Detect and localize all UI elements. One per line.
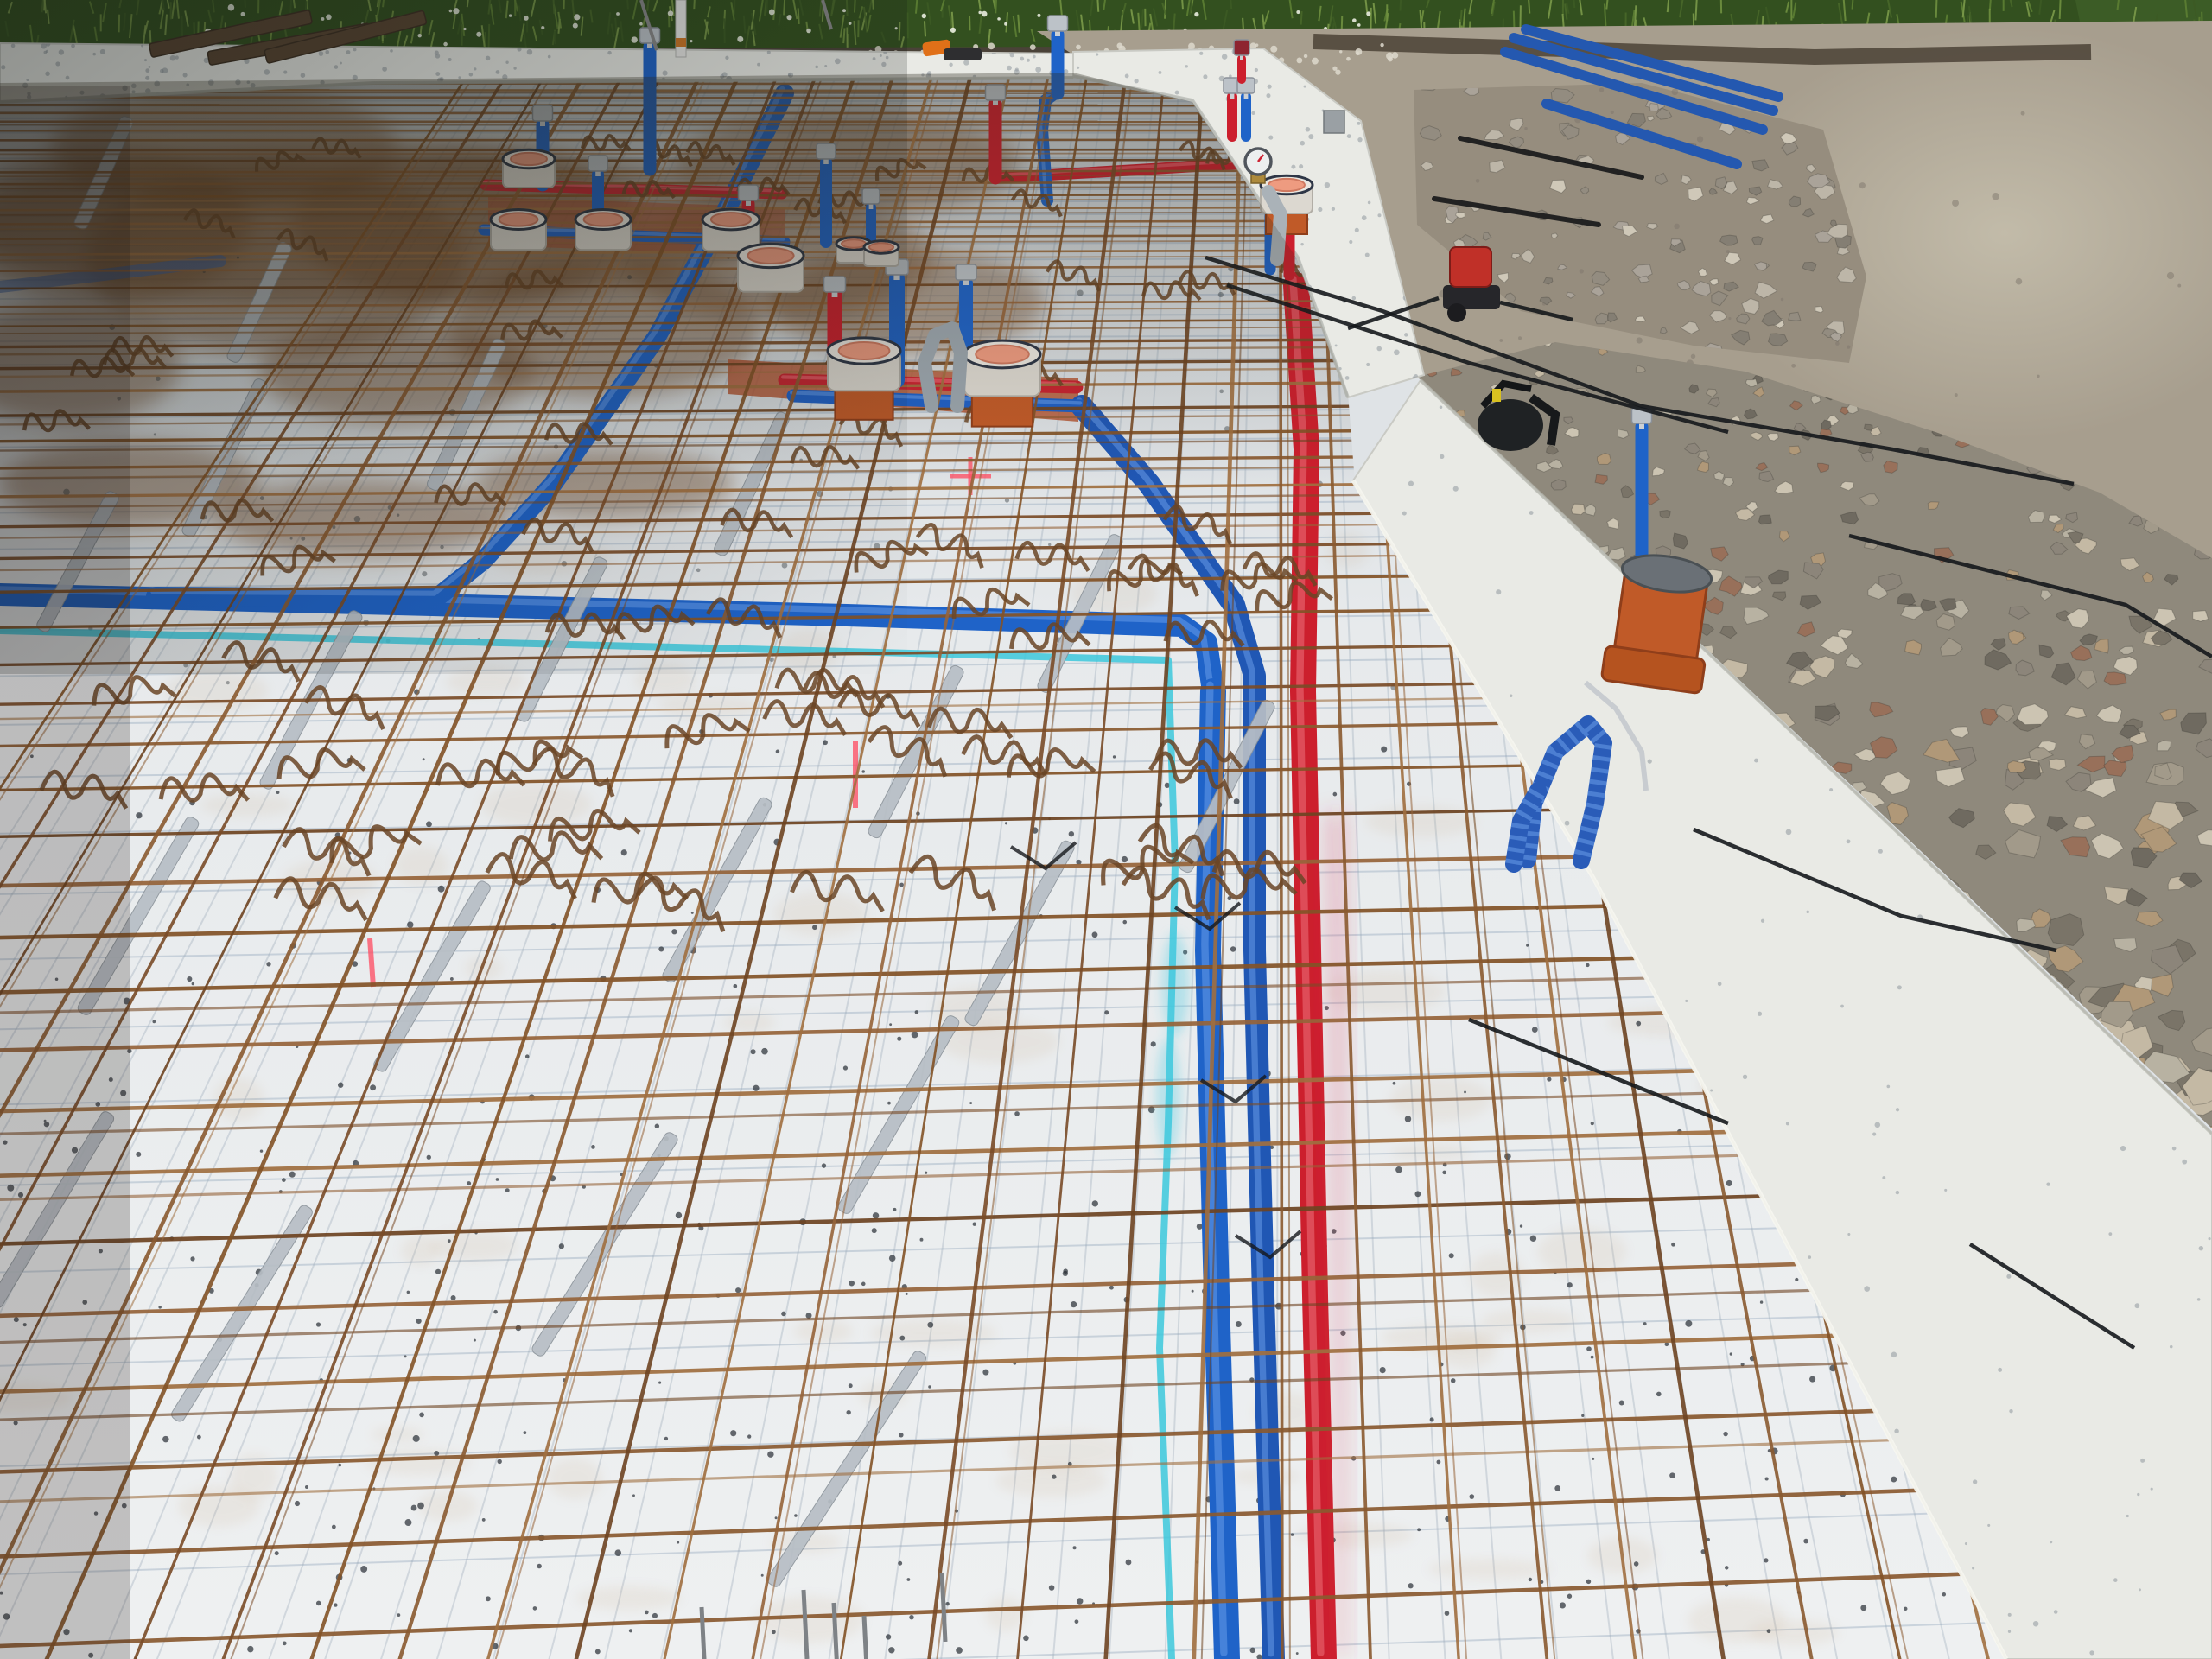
red-site-machine: [1450, 247, 1491, 287]
riser-cap: [1048, 16, 1068, 31]
yellow-tag: [1492, 389, 1501, 402]
grey-bucket: [1324, 111, 1344, 133]
scene-canvas: [0, 0, 2212, 1659]
riser-cap: [1234, 40, 1249, 55]
submersible-pump: [1478, 399, 1543, 451]
construction-photo: Foundation slab with EPS insulation, rus…: [0, 0, 2212, 1659]
dark-power-tool: [944, 48, 982, 60]
